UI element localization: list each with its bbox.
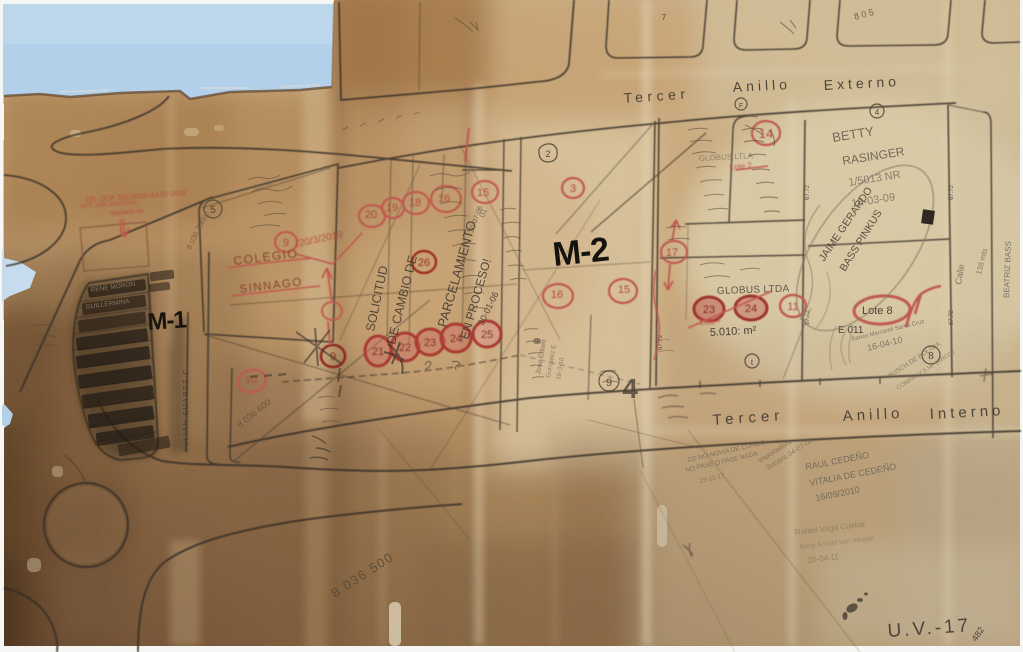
svg-text:15: 15: [618, 284, 630, 296]
svg-text:Anillo: Anillo: [842, 405, 903, 425]
svg-text:16: 16: [551, 289, 563, 301]
svg-text:5.010: m²: 5.010: m²: [710, 325, 757, 339]
svg-text:4: 4: [622, 373, 638, 404]
svg-text:67.72: 67.72: [658, 334, 664, 350]
svg-text:67.72: 67.72: [949, 309, 955, 325]
svg-text:20: 20: [365, 209, 377, 221]
svg-text:7: 7: [662, 13, 667, 22]
svg-text:21: 21: [372, 346, 384, 358]
svg-text:4: 4: [875, 108, 880, 117]
svg-text:2: 2: [545, 149, 550, 159]
svg-text:67.72: 67.72: [949, 184, 955, 200]
svg-text:15: 15: [477, 187, 489, 199]
svg-text:Lote: Lote: [700, 317, 717, 327]
svg-text:23: 23: [424, 337, 436, 349]
svg-text:F: F: [739, 103, 743, 110]
svg-text:67.72: 67.72: [805, 184, 811, 200]
svg-text:23: 23: [703, 304, 715, 316]
svg-text:Anillo: Anillo: [732, 76, 791, 95]
svg-text:24: 24: [745, 303, 757, 315]
svg-text:17: 17: [666, 247, 678, 259]
svg-text:19: 19: [386, 202, 398, 214]
svg-text:3: 3: [570, 183, 576, 195]
svg-text:26: 26: [418, 257, 430, 269]
svg-text:18: 18: [409, 197, 421, 209]
svg-text:22: 22: [399, 342, 411, 354]
svg-text:9: 9: [606, 377, 612, 389]
svg-text:M-2: M-2: [551, 230, 610, 274]
svg-text:25: 25: [481, 329, 493, 341]
